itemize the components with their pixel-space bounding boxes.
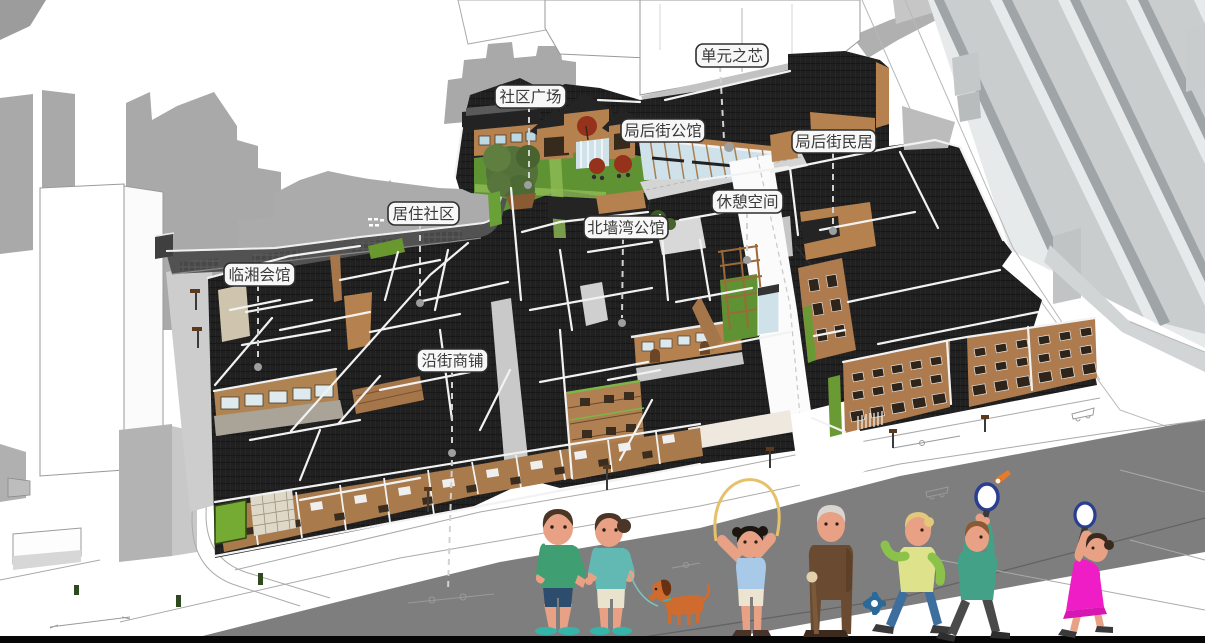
svg-text:临湘会馆: 临湘会馆: [228, 266, 290, 284]
svg-text:北墙湾公馆: 北墙湾公馆: [587, 219, 665, 237]
svg-text:社区广场: 社区广场: [499, 88, 561, 106]
svg-text:居住社区: 居住社区: [392, 205, 454, 223]
svg-text:单元之芯: 单元之芯: [701, 47, 763, 65]
svg-text:局后街民居: 局后街民居: [795, 133, 873, 151]
svg-text:局后街公馆: 局后街公馆: [624, 122, 702, 140]
svg-text:休憩空间: 休憩空间: [716, 193, 778, 211]
svg-text:沿街商铺: 沿街商铺: [421, 352, 483, 370]
